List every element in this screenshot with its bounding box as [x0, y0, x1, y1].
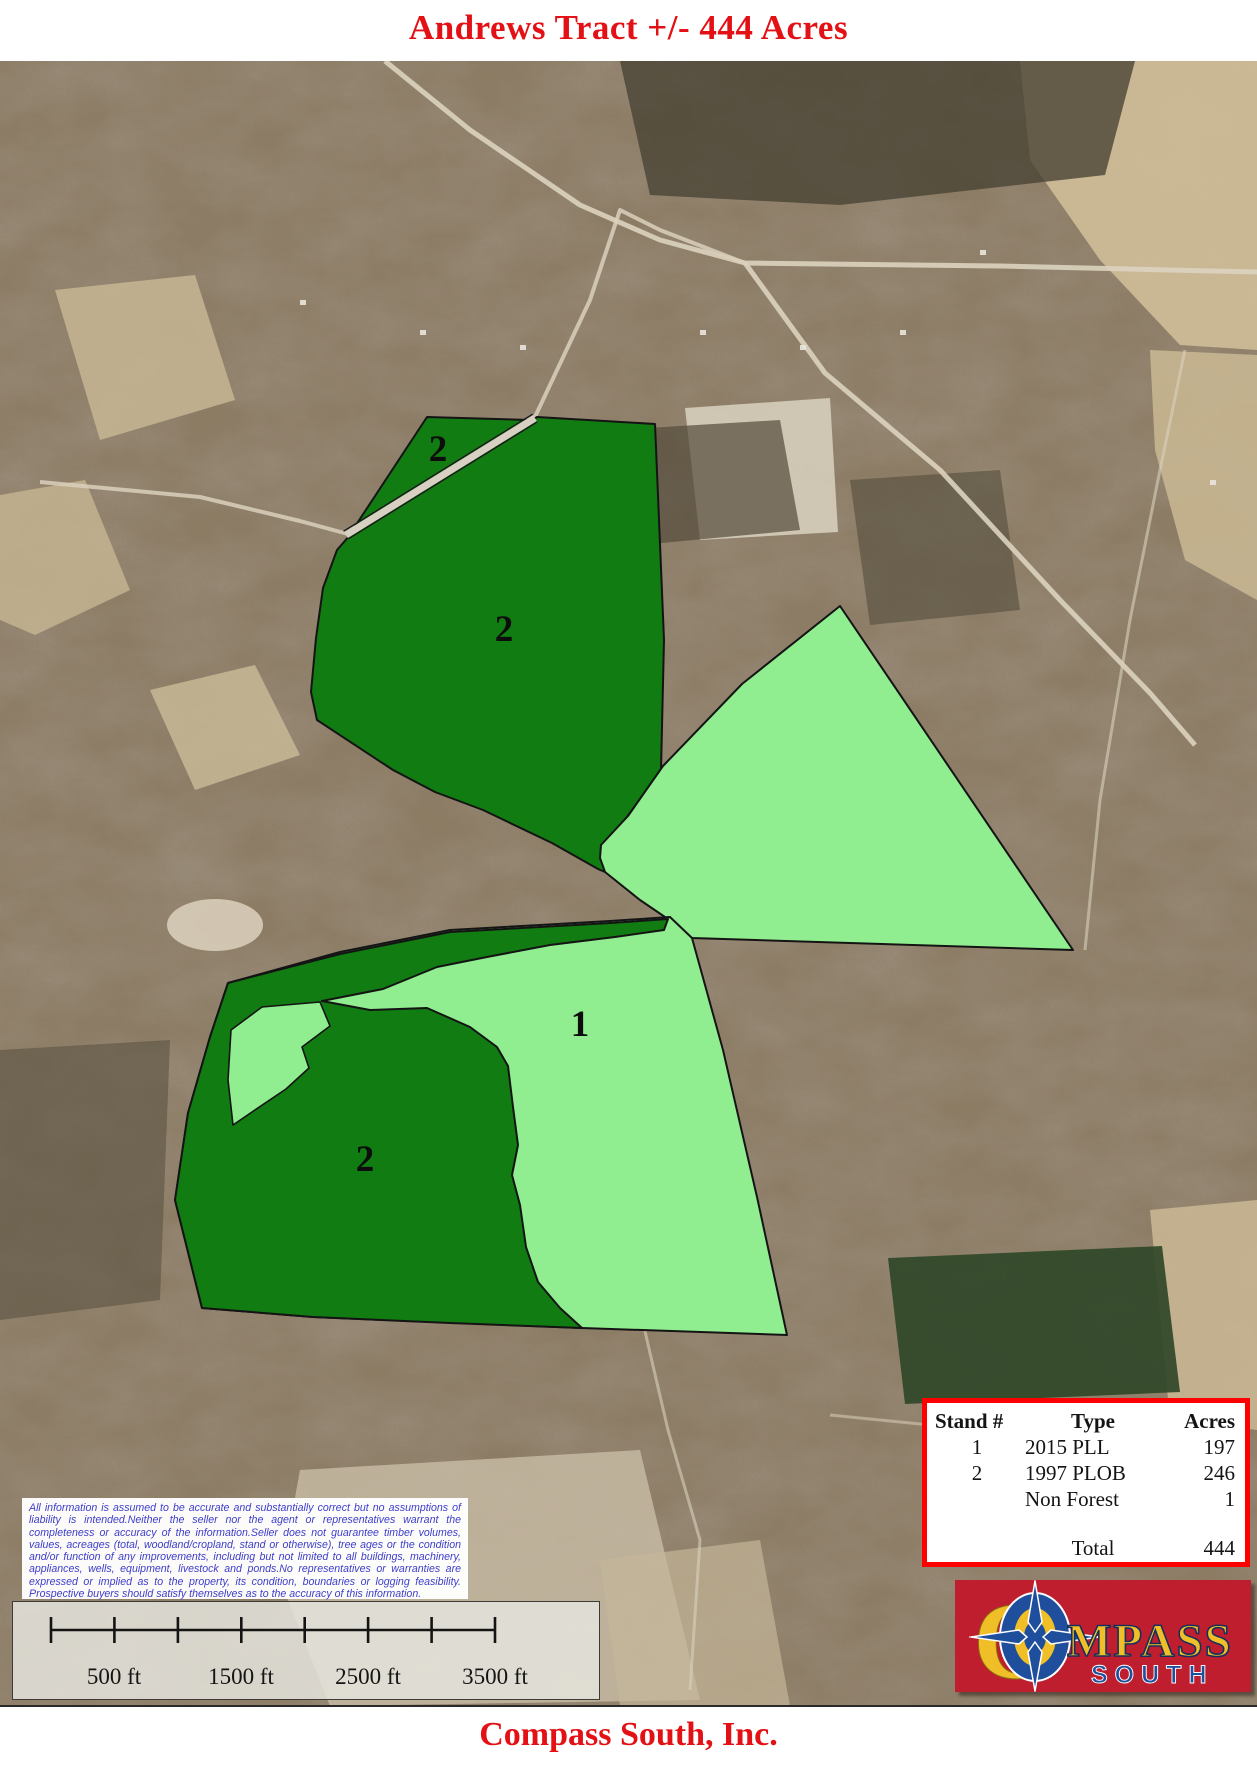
scale-label: 2500 ft	[335, 1664, 401, 1689]
page-title: Andrews Tract +/- 444 Acres	[0, 8, 1257, 48]
table-spacer	[935, 1512, 1235, 1535]
compass-south-logo-graphic: C MPASS SOUTH	[955, 1580, 1251, 1692]
table-row: 1 2015 PLL 197	[935, 1434, 1235, 1460]
scale-label: 1500 ft	[208, 1664, 274, 1689]
land-sale-map-page: 2 2 1 2 Andrews Tract +/- 444 Acres Comp…	[0, 0, 1257, 1766]
total-label: Total	[1019, 1535, 1167, 1561]
stand-label-2-south: 2	[356, 1139, 375, 1180]
stand-label-1-south: 1	[571, 1004, 590, 1045]
title-band: Andrews Tract +/- 444 Acres	[0, 0, 1257, 61]
disclaimer-box: All information is assumed to be accurat…	[22, 1498, 468, 1599]
table-row: Non Forest 1	[935, 1486, 1235, 1512]
scale-label: 500 ft	[87, 1664, 142, 1689]
disclaimer-text: All information is assumed to be accurat…	[29, 1502, 461, 1600]
stand-label-2-north-main: 2	[495, 609, 514, 650]
compass-south-logo: C MPASS SOUTH	[955, 1580, 1251, 1692]
scale-label: 3500 ft	[462, 1664, 528, 1689]
header-type: Type	[1019, 1408, 1167, 1434]
stand-label-2-north-triangle: 2	[429, 429, 448, 470]
table-total-row: Total 444	[935, 1535, 1235, 1561]
table-row: 2 1997 PLOB 246	[935, 1460, 1235, 1486]
header-acres: Acres	[1167, 1408, 1235, 1434]
header-stand: Stand #	[935, 1408, 1019, 1434]
total-value: 444	[1167, 1535, 1235, 1561]
logo-word-south: SOUTH	[1091, 1661, 1214, 1689]
company-name: Compass South, Inc.	[0, 1716, 1257, 1754]
logo-word-mpass: MPASS	[1067, 1615, 1233, 1667]
scale-bar-graphic: 500 ft 1500 ft 2500 ft 3500 ft	[13, 1602, 599, 1699]
stand-summary-table: Stand # Type Acres 1 2015 PLL 197 2 1997…	[922, 1398, 1250, 1567]
scale-bar: 500 ft 1500 ft 2500 ft 3500 ft	[12, 1601, 600, 1700]
footer-band: Compass South, Inc.	[0, 1707, 1257, 1766]
table-header-row: Stand # Type Acres	[935, 1408, 1235, 1434]
